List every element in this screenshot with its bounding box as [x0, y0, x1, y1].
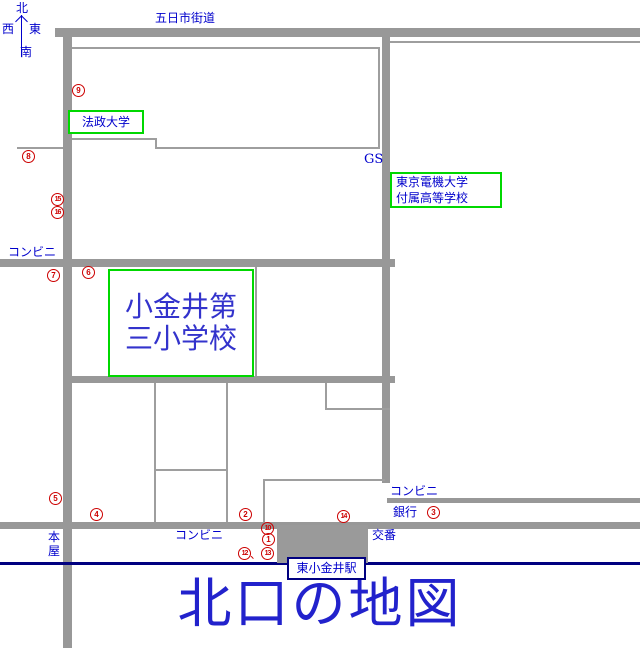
outline-hosei-upper — [72, 138, 157, 140]
road-east-horizontal — [387, 498, 640, 503]
road-name-itsukaichi: 五日市街道 — [155, 12, 215, 25]
elementary-school-line2: 三小学校 — [125, 323, 237, 355]
compass-arrow-up-icon — [15, 15, 28, 28]
police-box-label: 交番 — [372, 529, 396, 542]
bookstore-label: 本屋 — [48, 530, 62, 558]
marker-list-comma: 、 — [250, 550, 261, 561]
road-middle-horizontal — [0, 259, 395, 267]
marker-13: 13 — [261, 547, 274, 560]
outline-forecourt-left — [263, 479, 265, 522]
convenience-store-east-label: コンビニ — [390, 485, 438, 498]
marker-9: 9 — [72, 84, 85, 97]
outline-notch-horizontal — [325, 408, 390, 410]
station-name-box: 東小金井駅 — [287, 557, 366, 580]
outline-block-right — [226, 383, 228, 522]
hosei-university-label: 法政大学 — [82, 116, 130, 129]
outline-hosei-lower — [155, 147, 380, 149]
north-exit-map: 北 西 東 南 東小金井駅 法政大学 東京電機大学 付属高等学校 — [0, 0, 640, 650]
elementary-school-box: 小金井第 三小学校 — [108, 269, 254, 377]
outline-block-cross — [154, 469, 228, 471]
compass-east-label: 東 — [29, 23, 41, 35]
page-title: 北口の地図 — [0, 570, 640, 638]
outline-right-vertical — [378, 47, 380, 148]
outline-forecourt-top — [263, 479, 385, 481]
denki-high-school-box: 東京電機大学 付属高等学校 — [390, 172, 502, 208]
marker-6: 6 — [82, 266, 95, 279]
marker-2: 2 — [239, 508, 252, 521]
marker-8: 8 — [22, 150, 35, 163]
marker-7: 7 — [47, 269, 60, 282]
outline-notch-vertical — [325, 383, 327, 410]
marker-14: 14 — [337, 510, 350, 523]
marker-3: 3 — [427, 506, 440, 519]
outline-top-right — [390, 41, 640, 43]
road-itsukaichi-kaido — [55, 28, 640, 37]
marker-16: 16 — [51, 206, 64, 219]
convenience-store-west-label: コンビニ — [8, 246, 56, 259]
compass-west-label: 西 — [2, 23, 14, 35]
outline-top-left — [72, 47, 379, 49]
compass-north-label: 北 — [16, 2, 28, 14]
elementary-school-line1: 小金井第 — [125, 291, 237, 323]
convenience-store-center-label: コンビニ — [175, 529, 223, 542]
denki-high-school-line2: 付属高等学校 — [396, 190, 468, 206]
marker-4: 4 — [90, 508, 103, 521]
outline-block-left — [154, 383, 156, 522]
outline-school-right — [255, 267, 257, 376]
marker-5: 5 — [49, 492, 62, 505]
gas-station-label: GS — [364, 153, 383, 166]
marker-1: 1 — [262, 533, 275, 546]
bank-label: 銀行 — [393, 506, 417, 519]
marker-15: 15 — [51, 193, 64, 206]
road-school-south — [63, 376, 395, 383]
denki-high-school-line1: 東京電機大学 — [396, 174, 468, 190]
outline-west-stub — [17, 147, 63, 149]
hosei-university-box: 法政大学 — [68, 110, 144, 134]
